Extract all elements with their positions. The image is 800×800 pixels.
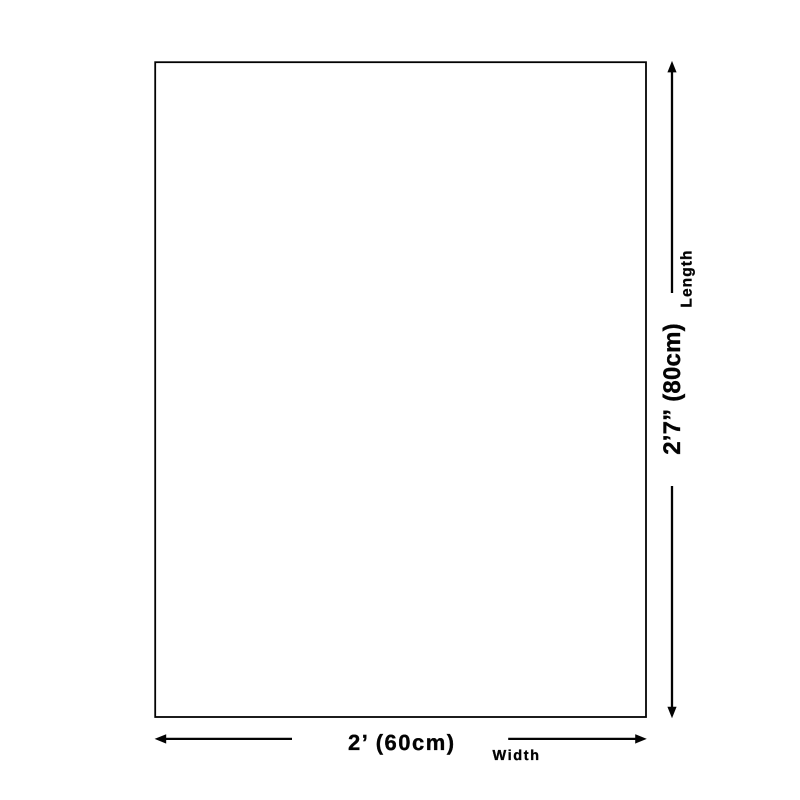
svg-text:2’7” (80cm): 2’7” (80cm)	[659, 323, 686, 455]
svg-text:2’ (60cm): 2’ (60cm)	[348, 730, 456, 755]
svg-text:Width: Width	[493, 748, 541, 764]
svg-text:Length: Length	[679, 249, 696, 307]
